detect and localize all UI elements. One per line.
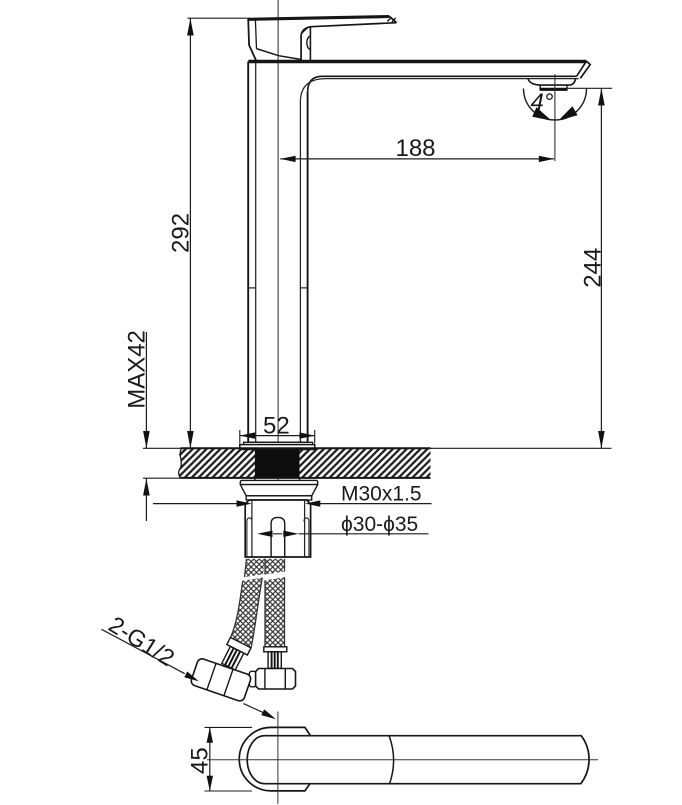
svg-text:M30x1.5: M30x1.5 <box>341 483 422 506</box>
svg-text:52: 52 <box>263 413 290 440</box>
svg-text:ϕ30-ϕ35: ϕ30-ϕ35 <box>341 513 418 536</box>
svg-text:244: 244 <box>580 248 607 288</box>
svg-text:292: 292 <box>168 213 195 253</box>
svg-text:MAX42: MAX42 <box>124 330 151 409</box>
svg-text:188: 188 <box>395 135 435 162</box>
svg-text:45: 45 <box>187 747 214 774</box>
svg-text:4°: 4° <box>531 89 554 116</box>
